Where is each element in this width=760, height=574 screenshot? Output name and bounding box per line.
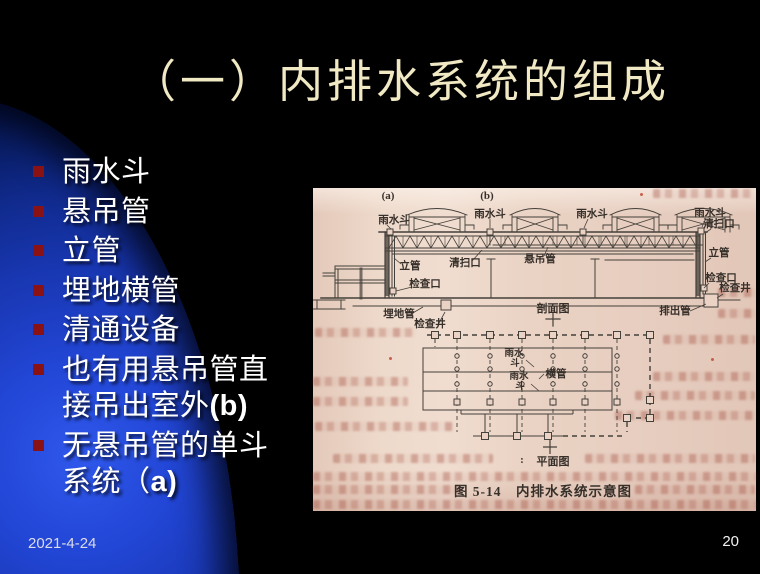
drainage-diagram: (a) (b) 雨水斗 雨水斗 雨水斗 雨水斗 清扫口 立管 检查口 检查井 排… [313, 188, 756, 511]
label-plan-hopper: 斗 [515, 381, 525, 392]
label-plan-rain: 雨水 [509, 370, 529, 382]
label-plan-hopper: 斗 [510, 358, 520, 369]
list-item: 雨水斗 [33, 154, 293, 191]
bullet-square-icon [33, 324, 44, 335]
label-buried-pipe: 埋地管 [383, 307, 415, 320]
label-system-b: (b) [480, 190, 494, 202]
list-item: 埋地横管 [33, 273, 293, 310]
presentation-slide: （一）内排水系统的组成 雨水斗 悬吊管 立管 埋地横管 清通设备 也有用悬吊管直… [0, 0, 760, 574]
label-system-a: (a) [382, 190, 395, 202]
label-cleanout: 清扫口 [703, 217, 735, 230]
list-item-text: 立管 [62, 233, 278, 270]
bullet-square-icon [33, 440, 44, 451]
list-item-main: 埋地横管 [62, 275, 180, 307]
label-plan-rain: 雨水 [504, 347, 524, 359]
section-view-geometry [389, 209, 739, 249]
label-discharge-pipe: 排出管 [659, 304, 691, 317]
footer-date: 2021-4-24 [28, 535, 96, 552]
label-lateral-pipe: 横管 [546, 367, 567, 380]
list-item-suffix: (b) [210, 390, 249, 422]
label-plan-view: 平面图 [537, 455, 570, 468]
list-item: 清通设备 [33, 312, 293, 349]
list-item-main: 雨水斗 [62, 156, 151, 188]
figure-caption: 图 5-14 内排水系统示意图 [454, 483, 632, 499]
label-rain-hopper: 雨水斗 [474, 207, 506, 220]
label-section-view: 剖面图 [537, 301, 570, 315]
list-item-main: 立管 [62, 235, 121, 267]
list-item: 也有用悬吊管直接吊出室外(b) [33, 352, 293, 425]
list-item-text: 悬吊管 [62, 194, 278, 231]
list-item-main: 清通设备 [62, 314, 180, 346]
label-check-well: 检查井 [414, 317, 446, 330]
list-item-text: 无悬吊管的单斗系统（a) [62, 428, 278, 501]
page-number: 20 [722, 533, 739, 550]
bullet-square-icon [33, 206, 44, 217]
list-item-main: 悬吊管 [62, 196, 151, 228]
label-rain-hopper-icon: 雨水斗 [378, 213, 410, 226]
label-riser: 立管 [709, 246, 730, 259]
label-rain-hopper: 雨水斗 [694, 206, 726, 219]
list-item: 悬吊管 [33, 194, 293, 231]
scanned-figure: (a) (b) 雨水斗 雨水斗 雨水斗 雨水斗 清扫口 立管 检查口 检查井 排… [313, 188, 756, 511]
list-item-text: 清通设备 [62, 312, 278, 349]
list-item-text: 雨水斗 [62, 154, 278, 191]
label-rain-hopper: 雨水斗 [576, 207, 608, 220]
label-riser: 立管 [400, 259, 421, 272]
label-cleanout: 清扫口 [449, 256, 481, 269]
label-colon: : [520, 454, 524, 466]
list-item: 立管 [33, 233, 293, 270]
bullet-square-icon [33, 364, 44, 375]
bullet-square-icon [33, 285, 44, 296]
bullet-square-icon [33, 166, 44, 177]
label-check-port: 检查口 [409, 277, 441, 290]
list-item-suffix: a) [151, 466, 178, 498]
list-item-text: 也有用悬吊管直接吊出室外(b) [62, 352, 278, 425]
label-suspended-pipe: 悬吊管 [523, 252, 556, 265]
slide-title: （一）内排水系统的组成 [131, 45, 670, 110]
bullet-list: 雨水斗 悬吊管 立管 埋地横管 清通设备 也有用悬吊管直接吊出室外(b) 无悬吊… [33, 154, 293, 504]
list-item: 无悬吊管的单斗系统（a) [33, 428, 293, 501]
list-item-text: 埋地横管 [62, 273, 278, 310]
label-check-well: 检查井 [719, 281, 751, 294]
bullet-square-icon [33, 245, 44, 256]
